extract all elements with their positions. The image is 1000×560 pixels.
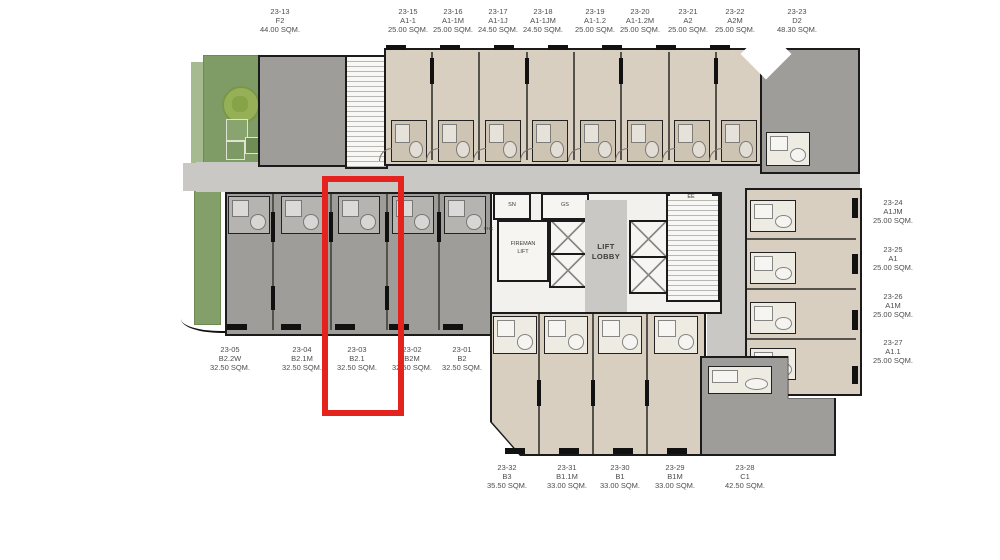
unit-id: 23-23 <box>762 7 832 16</box>
gs-room: GS <box>541 193 589 220</box>
bathroom-pod <box>766 132 810 166</box>
unit-id: 23-05 <box>195 345 265 354</box>
bathroom-pod <box>750 200 796 232</box>
highlight-box-23-03 <box>322 176 404 416</box>
unit-label-23-23: 23-23 D2 48.30 SQM. <box>762 7 832 34</box>
top-wall-segments <box>386 45 760 50</box>
bathroom-pod <box>750 252 796 284</box>
bathroom-pod <box>493 316 537 354</box>
unit-label-23-25: 23-25 A1 25.00 SQM. <box>858 245 928 272</box>
bathroom-pod <box>750 302 796 334</box>
bathroom-pod <box>438 120 474 162</box>
lobby-line2: LOBBY <box>585 252 627 262</box>
unit-area: 42.50 SQM. <box>710 481 780 490</box>
unit-label-23-13: 23-13 F2 44.00 SQM. <box>245 7 315 34</box>
planter-box <box>226 141 245 160</box>
unit-label-23-29: 23-29 B1M 33.00 SQM. <box>640 463 710 490</box>
wall-chunk <box>271 286 275 310</box>
unit-id: 23-29 <box>640 463 710 472</box>
lift-shaft <box>549 220 587 255</box>
ee-label: EE <box>670 194 712 200</box>
unit-id: 23-28 <box>710 463 780 472</box>
bathroom-pod <box>391 120 427 162</box>
wall-chunk <box>430 58 434 84</box>
unit-id: 23-26 <box>858 292 928 301</box>
unit-type: A1.1 <box>858 347 928 356</box>
bathroom-pod <box>485 120 521 162</box>
unit-area: 48.30 SQM. <box>762 25 832 34</box>
unit-area: 44.00 SQM. <box>245 25 315 34</box>
wall-chunk <box>537 380 541 406</box>
unit-label-23-05: 23-05 B2.2W 32.50 SQM. <box>195 345 265 372</box>
floor-plan-canvas: SN GS FHC FIREMAN LIFT LIFT LOBBY EE <box>0 0 1000 560</box>
unit-divider <box>747 288 856 290</box>
unit-id: 23-13 <box>245 7 315 16</box>
unit-type: B1M <box>640 472 710 481</box>
wall-chunk <box>271 212 275 242</box>
wall-chunk <box>437 212 441 242</box>
unit-id: 23-27 <box>858 338 928 347</box>
sn-label: SN <box>495 202 529 208</box>
lift-lobby: LIFT LOBBY <box>585 200 627 312</box>
lobby-line1: LIFT <box>585 242 627 252</box>
fireman-lift-label: FIREMAN LIFT <box>499 240 547 256</box>
fireman-line2: LIFT <box>499 248 547 256</box>
unit-type: F2 <box>245 16 315 25</box>
unit-type: A1M <box>858 301 928 310</box>
bathroom-pod <box>708 366 772 394</box>
unit-area: 25.00 SQM. <box>858 216 928 225</box>
unit-area: 32.50 SQM. <box>427 363 497 372</box>
unit-area: 32.50 SQM. <box>195 363 265 372</box>
bottom-wall-segments <box>505 448 705 454</box>
unit-divider <box>747 338 856 340</box>
fhc-label: FHC <box>484 226 493 231</box>
unit-f2-23-13 <box>258 55 350 167</box>
unit-label-23-26: 23-26 A1M 25.00 SQM. <box>858 292 928 319</box>
unit-id: 23-24 <box>858 198 928 207</box>
bathroom-pod <box>228 196 270 234</box>
wall-chunk <box>619 58 623 84</box>
bathroom-pod <box>598 316 642 354</box>
unit-area: 25.00 SQM. <box>858 356 928 365</box>
bathroom-pod <box>281 196 323 234</box>
bathroom-pod <box>544 316 588 354</box>
lift-shaft <box>549 253 587 288</box>
bathroom-pod <box>627 120 663 162</box>
unit-type: B2.2W <box>195 354 265 363</box>
wall-chunk <box>645 380 649 406</box>
bathroom-pod <box>721 120 757 162</box>
unit-label-23-22: 23-22 A2M 25.00 SQM. <box>700 7 770 34</box>
unit-label-23-24: 23-24 A1JM 25.00 SQM. <box>858 198 928 225</box>
unit-divider <box>668 52 670 160</box>
lift-lobby-label: LIFT LOBBY <box>585 242 627 262</box>
tree-core <box>232 96 248 112</box>
staircase-ee <box>666 194 720 302</box>
unit-type: A1 <box>858 254 928 263</box>
green-planter-strip <box>194 190 221 325</box>
unit-area: 25.00 SQM. <box>858 263 928 272</box>
bathroom-pod <box>654 316 698 354</box>
wall-chunk <box>714 58 718 84</box>
sn-room: SN <box>493 193 531 220</box>
unit-id: 23-25 <box>858 245 928 254</box>
fireman-lift-room: FIREMAN LIFT <box>497 220 549 282</box>
wall-chunk <box>525 58 529 84</box>
unit-area: 25.00 SQM. <box>700 25 770 34</box>
unit-divider <box>573 52 575 160</box>
unit-type: A2M <box>700 16 770 25</box>
balcony-curve-line <box>181 317 225 333</box>
unit-divider <box>478 52 480 160</box>
unit-type: B2 <box>427 354 497 363</box>
fireman-line1: FIREMAN <box>499 240 547 248</box>
unit-type: A1JM <box>858 207 928 216</box>
unit-id: 23-01 <box>427 345 497 354</box>
lift-shaft <box>629 220 668 258</box>
unit-area: 33.00 SQM. <box>640 481 710 490</box>
bathroom-pod <box>580 120 616 162</box>
bathroom-pod <box>532 120 568 162</box>
unit-label-23-27: 23-27 A1.1 25.00 SQM. <box>858 338 928 365</box>
unit-label-23-28: 23-28 C1 42.50 SQM. <box>710 463 780 490</box>
bathroom-pod <box>674 120 710 162</box>
unit-type: D2 <box>762 16 832 25</box>
unit-area: 25.00 SQM. <box>858 310 928 319</box>
garden-edge-strip <box>191 62 203 164</box>
unit-label-23-01: 23-01 B2 32.50 SQM. <box>427 345 497 372</box>
corridor-c1-access <box>707 314 745 358</box>
gs-label: GS <box>543 202 587 208</box>
lift-shaft <box>629 256 668 294</box>
unit-id: 23-22 <box>700 7 770 16</box>
unit-type: C1 <box>710 472 780 481</box>
wall-chunk <box>591 380 595 406</box>
unit-divider <box>747 238 856 240</box>
bathroom-pod <box>444 196 486 234</box>
